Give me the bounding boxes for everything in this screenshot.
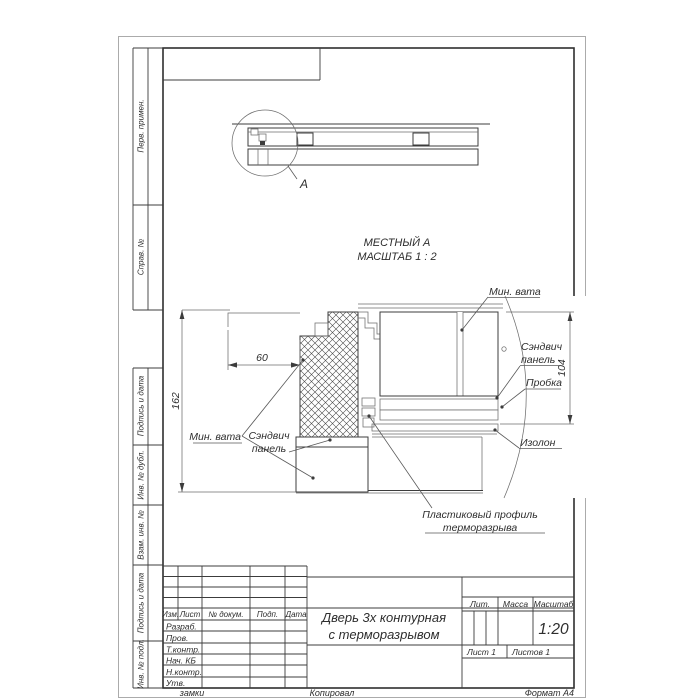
footer-format-a4: Формат А4 [525, 688, 574, 698]
sandwich-wool-block [296, 447, 368, 492]
margin-label-perv-primen: Перв. примен. [137, 99, 146, 152]
drawing-sheet-page: Перв. примен. Справ. № Подпись и дата Ин… [0, 0, 700, 700]
label-sandwich-left-1: Сэндвич [248, 430, 290, 442]
margin-label-podpis-data-1: Подпись и дата [137, 375, 146, 436]
col-dokum: № докум. [208, 610, 243, 619]
caption-local-view: МЕСТНЫЙ А [364, 236, 431, 249]
row-nkontr: Н.контр. [166, 667, 202, 677]
doc-title-line2: с терморазрывом [328, 627, 439, 642]
label-mineral-wool-right: Мин. вата [489, 286, 541, 298]
dim-162-text: 162 [170, 392, 182, 410]
margin-label-podpis-data-2: Подпись и дата [137, 572, 146, 633]
label-mineral-wool-left: Мин. вата [189, 431, 241, 443]
row-tkontr: Т.контр. [166, 645, 200, 655]
leaf-mineral-wool [380, 312, 498, 396]
label-izolon: Изолон [520, 437, 556, 449]
hinge-block-2 [413, 133, 429, 145]
wool-layer [380, 410, 498, 420]
caption-scale: МАСШТАБ 1 : 2 [357, 251, 436, 263]
margin-label-sprav-no: Справ. № [137, 238, 146, 275]
door-bottom-profile [248, 149, 478, 165]
col-data: Дата [284, 610, 307, 619]
sandwich-skin-strip [296, 437, 368, 447]
label-sandwich-right-2: панель [521, 354, 555, 366]
label-sandwich-left-2: панель [252, 443, 286, 455]
dim-60-text: 60 [256, 352, 268, 364]
footer-left-watermark: замки [179, 688, 205, 698]
margin-label-inv-podl: Инв. № подл. [137, 639, 146, 689]
label-plastic-profile-1: Пластиковый профиль [422, 509, 537, 521]
dim-104-text: 104 [556, 359, 568, 377]
margin-label-vzam-inv: Взам. инв. № [137, 510, 146, 560]
col-izm: Изм. [162, 610, 179, 619]
label-sandwich-right-1: Сэндвич [521, 341, 563, 353]
doc-title-line1: Дверь 3х контурная [320, 610, 446, 625]
col-list: Лист [179, 610, 201, 619]
row-prov: Пров. [166, 633, 188, 643]
row-razrab: Разраб. [166, 622, 197, 632]
label-plastic-profile-2: терморазрыва [443, 522, 517, 534]
sheet-number: Лист 1 [466, 647, 496, 657]
scale-label: Масштаб [534, 599, 575, 609]
margin-label-inv-dubl: Инв. № дубл. [137, 450, 146, 499]
cork-layer [380, 399, 498, 410]
izolon-layer [372, 424, 498, 431]
detail-marker-a: А [299, 177, 308, 191]
row-nachkb: Нач. КБ [166, 656, 196, 666]
row-utv: Утв. [165, 678, 185, 688]
door-leaf-body [248, 128, 478, 146]
scale-value: 1:20 [538, 621, 569, 638]
hinge-block-1 [297, 133, 313, 145]
sheets-total: Листов 1 [511, 647, 550, 657]
gost-drawing-svg: Перв. примен. Справ. № Подпись и дата Ин… [0, 0, 700, 700]
label-cork: Пробка [526, 377, 562, 389]
footer-kopiroval: Копировал [310, 688, 355, 698]
lit-label: Лит. [469, 599, 490, 609]
mass-label: Масса [503, 599, 528, 609]
col-podp: Подп. [257, 610, 278, 619]
